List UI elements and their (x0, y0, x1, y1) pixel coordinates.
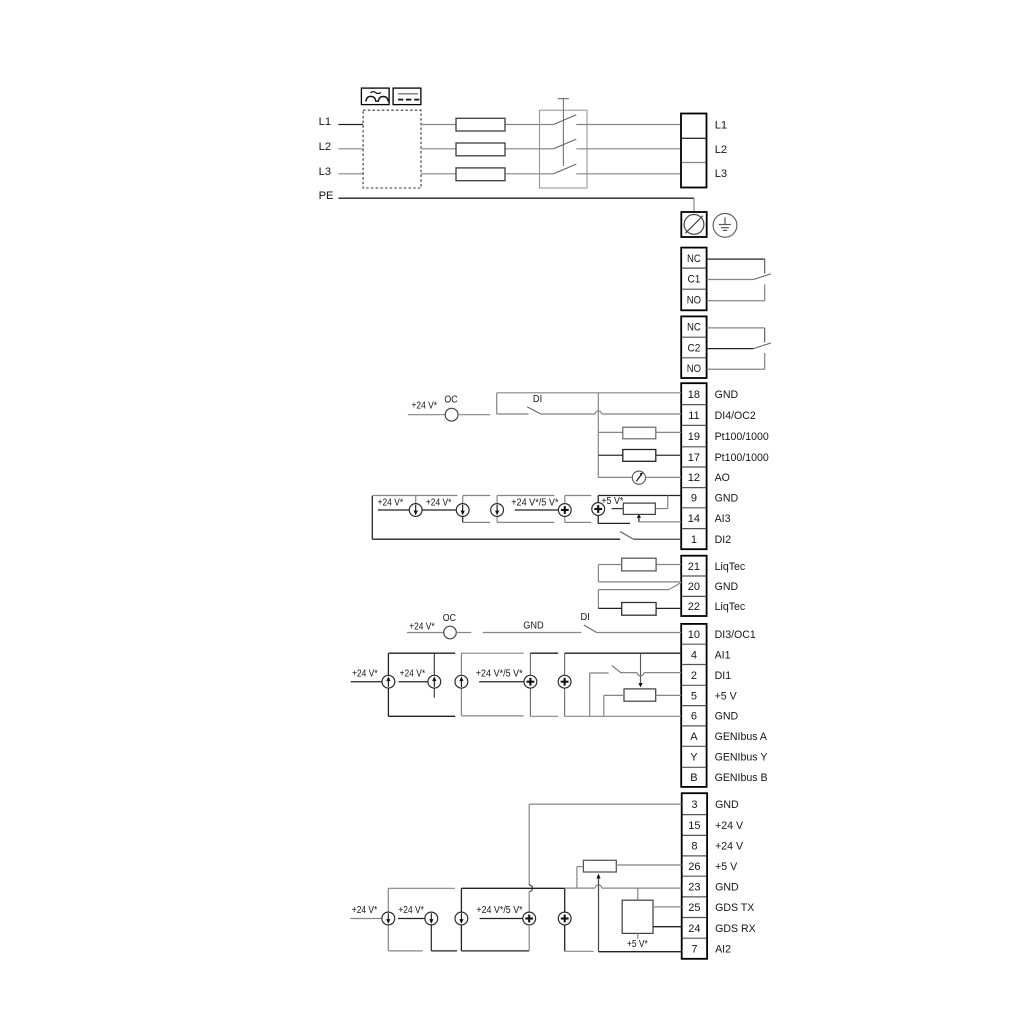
svg-text:19: 19 (688, 431, 700, 443)
svg-text:GDS TX: GDS TX (715, 902, 754, 914)
svg-text:AI2: AI2 (715, 943, 731, 955)
svg-text:+24 V*/5 V*: +24 V*/5 V* (511, 498, 558, 509)
svg-text:DI: DI (581, 612, 590, 623)
svg-text:4: 4 (691, 649, 697, 661)
svg-text:L3: L3 (319, 166, 331, 178)
svg-text:11: 11 (688, 410, 699, 422)
svg-text:L3: L3 (715, 168, 727, 180)
svg-text:L2: L2 (319, 141, 331, 153)
svg-text:GDS RX: GDS RX (715, 923, 756, 935)
svg-text:+24 V: +24 V (715, 841, 744, 853)
svg-text:24: 24 (688, 923, 700, 935)
svg-text:7: 7 (691, 943, 697, 955)
svg-text:GND: GND (715, 493, 739, 505)
svg-text:Y: Y (690, 752, 698, 764)
svg-text:+24 V: +24 V (715, 820, 744, 832)
svg-text:23: 23 (688, 881, 700, 893)
svg-text:21: 21 (688, 561, 700, 573)
svg-text:LiqTec: LiqTec (715, 561, 746, 573)
svg-text:+5 V*: +5 V* (601, 496, 623, 507)
svg-text:6: 6 (691, 711, 697, 723)
svg-text:L1: L1 (715, 119, 727, 131)
svg-text:+24 V*: +24 V* (378, 498, 404, 509)
svg-text:+24 V*: +24 V* (412, 401, 438, 412)
svg-text:Pt100/1000: Pt100/1000 (715, 431, 769, 443)
svg-text:+24 V*/5 V*: +24 V*/5 V* (476, 905, 522, 916)
svg-text:AO: AO (715, 472, 730, 484)
svg-text:OC: OC (443, 613, 456, 624)
svg-text:25: 25 (688, 902, 700, 914)
svg-text:PE: PE (319, 190, 334, 202)
svg-text:GND: GND (715, 799, 739, 811)
svg-text:+24 V*: +24 V* (400, 669, 426, 680)
svg-text:C2: C2 (687, 342, 700, 354)
svg-text:+24 V*: +24 V* (352, 905, 378, 916)
svg-text:GND: GND (715, 711, 739, 723)
svg-text:10: 10 (688, 629, 700, 641)
svg-text:8: 8 (691, 841, 697, 853)
svg-text:26: 26 (688, 861, 700, 873)
svg-text:+24 V*: +24 V* (352, 669, 378, 680)
svg-text:LiqTec: LiqTec (715, 601, 746, 613)
svg-text:+24 V*: +24 V* (409, 622, 435, 633)
svg-text:2: 2 (691, 670, 697, 682)
svg-text:NO: NO (687, 363, 702, 375)
svg-text:1: 1 (691, 534, 697, 546)
svg-text:NC: NC (687, 253, 701, 265)
svg-text:L2: L2 (715, 144, 727, 156)
svg-text:+5 V: +5 V (715, 861, 738, 873)
svg-text:GND: GND (715, 581, 739, 593)
svg-text:GND: GND (715, 881, 739, 893)
svg-text:+24 V*/5 V*: +24 V*/5 V* (476, 669, 523, 680)
svg-text:DI3/OC1: DI3/OC1 (715, 629, 756, 641)
svg-text:15: 15 (688, 820, 700, 832)
svg-text:22: 22 (688, 601, 700, 613)
svg-text:Pt100/1000: Pt100/1000 (715, 452, 769, 464)
svg-text:DI: DI (533, 394, 542, 405)
svg-text:GND: GND (523, 620, 543, 631)
svg-text:DI2: DI2 (715, 534, 732, 546)
svg-text:DI1: DI1 (715, 670, 732, 682)
svg-text:17: 17 (688, 452, 700, 464)
svg-text:L1: L1 (319, 116, 331, 128)
svg-text:+24 V*: +24 V* (426, 498, 452, 509)
svg-text:5: 5 (691, 690, 697, 702)
svg-text:C1: C1 (687, 274, 700, 286)
svg-text:14: 14 (688, 513, 700, 525)
svg-text:+24 V*: +24 V* (398, 905, 424, 916)
svg-text:OC: OC (444, 394, 457, 405)
svg-text:AI1: AI1 (715, 649, 731, 661)
svg-text:B: B (690, 772, 697, 784)
svg-text:+5 V: +5 V (715, 690, 738, 702)
svg-text:9: 9 (691, 493, 697, 505)
svg-text:GND: GND (715, 389, 739, 401)
svg-text:AI3: AI3 (715, 513, 731, 525)
svg-text:20: 20 (688, 581, 700, 593)
svg-text:A: A (690, 731, 698, 743)
svg-text:GENIbus Y: GENIbus Y (715, 752, 768, 764)
svg-text:+5 V*: +5 V* (627, 939, 648, 950)
svg-text:DI4/OC2: DI4/OC2 (715, 410, 756, 422)
svg-text:18: 18 (688, 389, 700, 401)
svg-text:12: 12 (688, 472, 700, 484)
svg-text:3: 3 (691, 799, 697, 811)
svg-text:GENIbus B: GENIbus B (715, 772, 768, 784)
svg-text:NC: NC (687, 322, 701, 334)
svg-text:NO: NO (687, 295, 702, 307)
svg-text:GENIbus A: GENIbus A (715, 731, 768, 743)
